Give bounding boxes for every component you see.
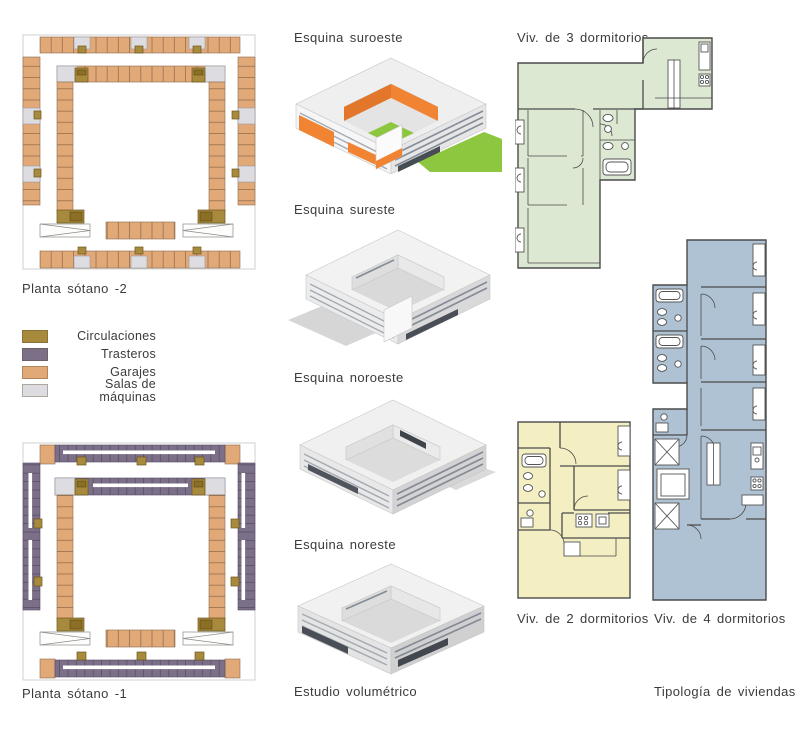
view-title-noreste: Esquina noreste [294,537,396,552]
typology-caption: Tipología de viviendas [654,684,796,699]
plan-sotano-2-label: Planta sótano -2 [22,281,127,296]
legend-swatch-circulaciones [22,330,48,343]
view-title-suroeste: Esquina suroeste [294,30,403,45]
legend-label-trasteros: Trasteros [48,348,156,361]
viv4-plan-drawing [650,236,770,604]
viv2-plan-drawing [516,418,634,602]
legend-swatch-garajes [22,366,48,379]
plan-sotano-2-drawing [18,22,256,274]
legend: Circulaciones Trasteros Garajes Salas de… [22,330,156,402]
presentation-board: Planta sótano -2 Circulaciones Trasteros… [0,0,800,734]
viv3-plan-drawing [515,28,715,270]
legend-swatch-trasteros [22,348,48,361]
legend-swatch-salas [22,384,48,397]
view-drawing-suroeste [288,52,503,174]
plan-sotano-1-label: Planta sótano -1 [22,686,127,701]
viv4-title: Viv. de 4 dormitorios [654,611,786,626]
viv2-title: Viv. de 2 dormitorios [517,611,649,626]
legend-label-circulaciones: Circulaciones [48,330,156,343]
legend-label-salas: Salas de máquinas [48,378,156,404]
view-drawing-noreste [288,556,503,680]
legend-row-trasteros: Trasteros [22,348,156,361]
legend-row-circulaciones: Circulaciones [22,330,156,343]
view-title-sureste: Esquina sureste [294,202,395,217]
view-drawing-noroeste [288,390,503,518]
plan-sotano-1-drawing [18,440,256,688]
view-title-noroeste: Esquina noroeste [294,370,404,385]
view-drawing-sureste [288,222,503,350]
volumetric-caption: Estudio volumétrico [294,684,417,699]
legend-row-salas: Salas de máquinas [22,384,156,397]
